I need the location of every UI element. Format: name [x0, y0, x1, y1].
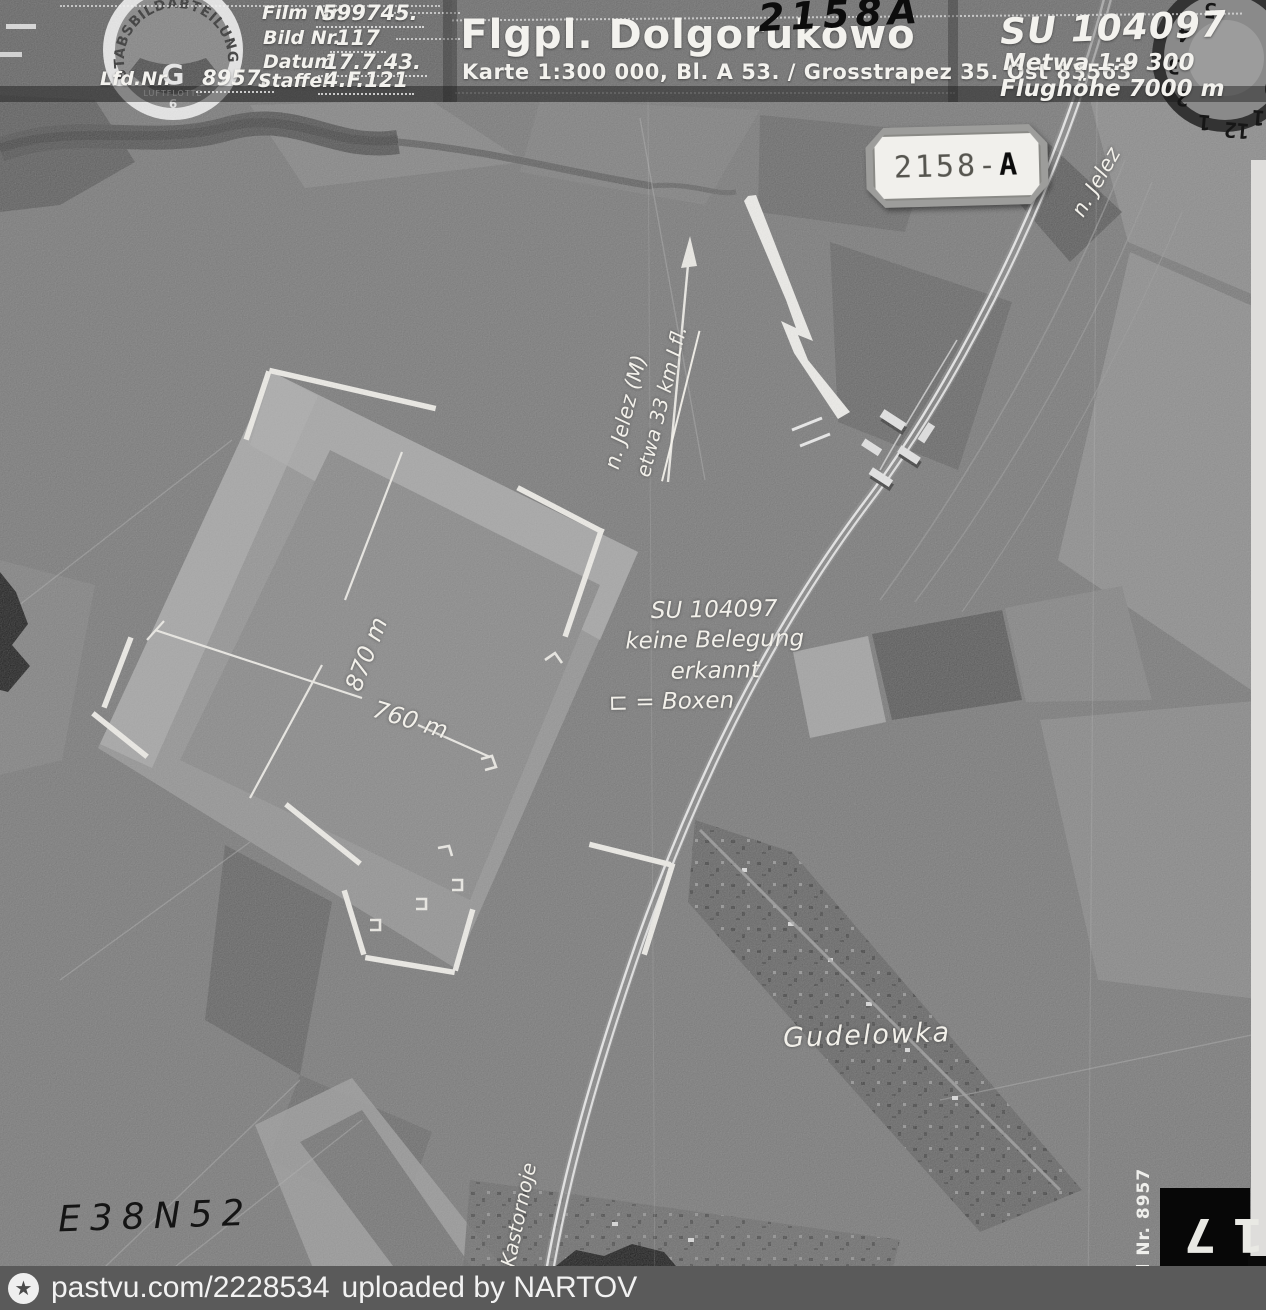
dial-number: 12: [1223, 117, 1250, 143]
bild-nr-label: Bild Nr.: [263, 27, 341, 49]
watermark-uploader: uploaded by NARTOV: [342, 1271, 638, 1305]
grid-reference-handwritten: E38N52: [57, 1193, 254, 1241]
watermark-bar: ★ pastvu.com/2228534 uploaded by NARTOV: [0, 1266, 1266, 1310]
village-label: Gudelowka: [783, 1017, 952, 1054]
altitude-line: Flughöhe 7000 m: [1000, 76, 1225, 102]
header-seam: [948, 0, 958, 102]
photo-edge-strip: [1251, 160, 1266, 1264]
bild-nr-value: 117: [330, 26, 386, 53]
sticker-suffix: A: [999, 147, 1021, 183]
staffel-value: 4.F.121: [318, 68, 414, 95]
note-line1: SU 104097: [599, 593, 829, 627]
photo-id: SU 104097: [999, 4, 1227, 53]
lfd-nr-label: Lfd.Nr.: [100, 68, 171, 90]
note-line2: keine Belegung: [599, 623, 829, 657]
frame-number: 117: [1168, 1208, 1266, 1262]
pastvu-logo-icon: ★: [8, 1273, 39, 1304]
sortie-number-sticker: 2158-A: [865, 124, 1049, 209]
sticker-card: 2158-A: [872, 131, 1042, 201]
sticker-number: 2158-: [893, 147, 999, 185]
note-line3: erkannt: [600, 654, 830, 688]
dial-number: 1: [1197, 109, 1212, 134]
sticker-plate: 2158-A: [865, 124, 1049, 209]
header-seam: [443, 0, 457, 102]
aerial-photo-scan: STABSBILDABTEILUNG G LUFTFLOTTE 6 Film N…: [0, 0, 1266, 1310]
scale-line: Metwa 1:9 300: [1003, 50, 1194, 76]
watermark-url: pastvu.com/2228534: [51, 1271, 330, 1305]
film-nr-value: 599745.: [316, 1, 424, 28]
note-line4: ⊏ = Boxen: [601, 684, 831, 718]
dial-number: 11: [1251, 105, 1266, 131]
interpretation-note: SU 104097 keine Belegung erkannt ⊏ = Box…: [599, 593, 831, 718]
